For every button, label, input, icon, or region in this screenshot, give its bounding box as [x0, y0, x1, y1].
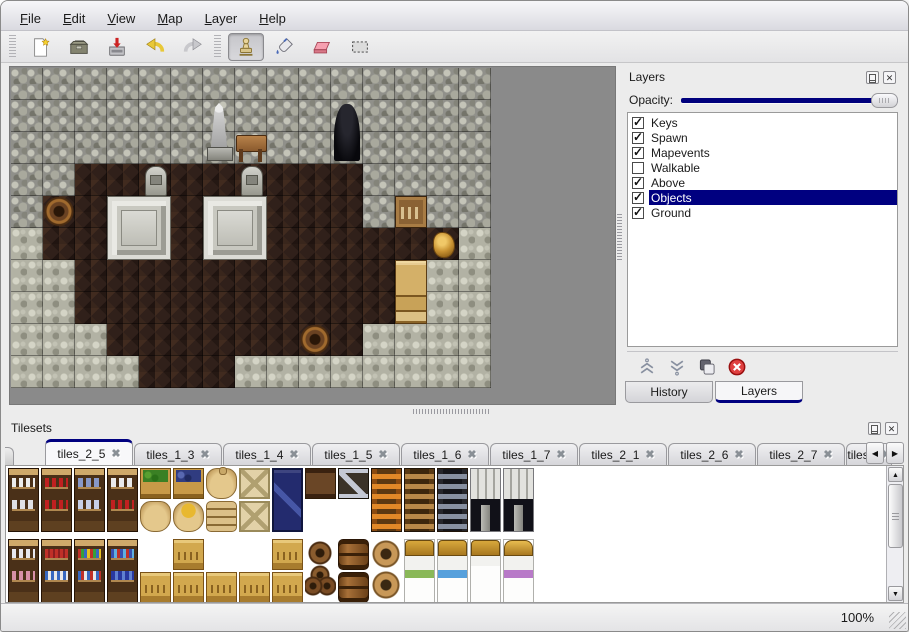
- map-object-table: [235, 132, 267, 164]
- map-tile-stone-wall[interactable]: [299, 68, 331, 100]
- map-tile-stone-ground[interactable]: [43, 260, 75, 292]
- map-tile-stone-ground[interactable]: [11, 356, 43, 388]
- tileset-tile-shelf-bottles-red[interactable]: [41, 468, 72, 532]
- map-tile-wood-floor[interactable]: [139, 260, 171, 292]
- close-tab-icon[interactable]: ✖: [645, 448, 654, 461]
- map-tile-wood-floor[interactable]: [171, 164, 203, 196]
- tileset-tab-tiles_2_7[interactable]: tiles_2_7✖: [757, 443, 845, 465]
- tileset-tile-sack-round[interactable]: [140, 501, 171, 532]
- map-tile-stone-wall[interactable]: [43, 68, 75, 100]
- scrolled-tab-stub: [5, 447, 14, 465]
- menu-help[interactable]: Help: [250, 9, 295, 28]
- map-tile-stone-wall[interactable]: [459, 164, 491, 196]
- tileset-tile-crate-metal-z[interactable]: [338, 468, 369, 499]
- tileset-tile-barrel[interactable]: [338, 572, 369, 603]
- map-tile-wood-floor[interactable]: [75, 292, 107, 324]
- close-tab-icon[interactable]: ✖: [200, 448, 209, 461]
- tileset-tile-crate-tan[interactable]: [206, 572, 237, 603]
- delete-layer-button[interactable]: [727, 357, 747, 377]
- map-tile-stone-ground[interactable]: [235, 356, 267, 388]
- status-bar: 100%: [1, 603, 908, 631]
- close-tab-icon[interactable]: ✖: [289, 448, 298, 461]
- tileset-tile-bed-purple[interactable]: [503, 539, 534, 603]
- tileset-tile-crate-produce[interactable]: [140, 468, 171, 499]
- tileset-tile-crate-tan[interactable]: [239, 572, 270, 603]
- stamp-icon: [235, 36, 257, 58]
- layer-row-ground[interactable]: Ground: [628, 205, 897, 220]
- tileset-tab-tiles_1_5[interactable]: tiles_1_5✖: [312, 443, 400, 465]
- layer-checkbox[interactable]: [632, 132, 644, 144]
- stamp-tool-button[interactable]: [228, 33, 264, 61]
- map-tile-stone-wall[interactable]: [171, 132, 203, 164]
- tileset-tab-label: tiles_2_1: [591, 448, 639, 462]
- layer-label: Objects: [651, 191, 692, 205]
- map-tile-stone-ground[interactable]: [459, 324, 491, 356]
- menu-edit[interactable]: Edit: [54, 9, 94, 28]
- open-folder-icon: [68, 36, 90, 58]
- tileset-tab-tiles_2_5[interactable]: tiles_2_5✖: [45, 439, 133, 465]
- tileset-tile-sack-open[interactable]: [173, 501, 204, 532]
- select-icon: [349, 36, 371, 58]
- map-tile-stone-wall[interactable]: [171, 68, 203, 100]
- menu-layer[interactable]: Layer: [196, 9, 247, 28]
- map-tile-stone-ground[interactable]: [459, 260, 491, 292]
- map-tile-wood-floor[interactable]: [363, 228, 395, 260]
- tileset-tile-ladder-brown[interactable]: [404, 468, 435, 532]
- duplicate-layer-button[interactable]: [697, 357, 717, 377]
- map-tile-stone-wall[interactable]: [363, 100, 395, 132]
- map-tile-stone-ground[interactable]: [395, 356, 427, 388]
- layer-row-above[interactable]: Above: [628, 175, 897, 190]
- scroll-down-icon[interactable]: ▼: [888, 586, 903, 601]
- map-tile-stone-ground[interactable]: [459, 228, 491, 260]
- layer-checkbox[interactable]: [632, 117, 644, 129]
- layer-checkbox[interactable]: [632, 207, 644, 219]
- float-panel-icon[interactable]: [868, 422, 881, 435]
- tileset-tile-crate-tan[interactable]: [140, 572, 171, 603]
- tileset-tile-crate-tan[interactable]: [173, 572, 204, 603]
- tileset-tile-shelf-dishes[interactable]: [8, 468, 39, 532]
- map-tile-stone-ground[interactable]: [427, 292, 459, 324]
- tileset-tile-shelf-books-blue[interactable]: [107, 539, 138, 603]
- layer-label: Ground: [651, 206, 691, 220]
- map-tile-wood-floor[interactable]: [267, 164, 299, 196]
- layers-panel-title: Layers: [629, 70, 862, 84]
- map-tile-stone-wall[interactable]: [427, 164, 459, 196]
- map-canvas[interactable]: [11, 68, 491, 388]
- map-tile-stone-ground[interactable]: [75, 324, 107, 356]
- tileset-tab-bar: tiles_2_5✖tiles_1_3✖tiles_1_4✖tiles_1_5✖…: [5, 439, 904, 465]
- map-tile-stone-wall[interactable]: [107, 100, 139, 132]
- map-tile-stone-wall[interactable]: [43, 164, 75, 196]
- map-tile-wood-floor[interactable]: [171, 260, 203, 292]
- map-tile-wood-floor[interactable]: [75, 260, 107, 292]
- map-tile-wood-floor[interactable]: [139, 292, 171, 324]
- map-tile-stone-ground[interactable]: [363, 356, 395, 388]
- tilesets-panel: Tilesets tiles_2_5✖tiles_1_3✖tiles_1_4✖t…: [5, 417, 904, 603]
- tileset-tile-shelf-jars[interactable]: [8, 539, 39, 603]
- close-tab-icon[interactable]: ✖: [556, 448, 565, 461]
- layer-row-spawn[interactable]: Spawn: [628, 130, 897, 145]
- tileset-tab-tiles_1_3[interactable]: tiles_1_3✖: [134, 443, 222, 465]
- map-tile-wood-floor[interactable]: [395, 228, 427, 260]
- map-tile-stone-ground[interactable]: [331, 356, 363, 388]
- lower-layer-icon: [667, 357, 687, 377]
- map-tile-stone-wall[interactable]: [427, 100, 459, 132]
- map-tile-stone-ground[interactable]: [427, 324, 459, 356]
- map-tile-wood-floor[interactable]: [107, 324, 139, 356]
- map-object-barrel: [43, 196, 75, 228]
- redo-icon: [182, 36, 204, 58]
- opacity-slider[interactable]: [681, 92, 898, 108]
- map-object-barrel: [299, 324, 331, 356]
- map-object-crate-shelf: [395, 196, 427, 228]
- map-tile-stone-wall[interactable]: [459, 196, 491, 228]
- map-view[interactable]: [9, 66, 616, 405]
- map-tile-stone-wall[interactable]: [139, 132, 171, 164]
- map-tile-wood-floor[interactable]: [203, 164, 235, 196]
- vertical-splitter[interactable]: [616, 66, 623, 405]
- map-tile-wood-floor[interactable]: [299, 164, 331, 196]
- map-tile-stone-wall[interactable]: [395, 68, 427, 100]
- fill-icon: [273, 36, 295, 58]
- map-tile-wood-floor[interactable]: [75, 196, 107, 228]
- map-tile-stone-wall[interactable]: [427, 68, 459, 100]
- dock-tab-bar: HistoryLayers: [623, 381, 902, 405]
- menu-bar: FileEditViewMapLayerHelp: [1, 1, 908, 31]
- tileset-tile-shelf-books-red[interactable]: [41, 539, 72, 603]
- layer-row-walkable[interactable]: Walkable: [628, 160, 897, 175]
- map-tile-stone-ground[interactable]: [75, 356, 107, 388]
- map-tile-wood-floor[interactable]: [267, 292, 299, 324]
- scroll-tabs-right-button[interactable]: ▶: [886, 442, 904, 464]
- map-tile-wood-floor[interactable]: [43, 228, 75, 260]
- map-tile-wood-floor[interactable]: [299, 292, 331, 324]
- raise-layer-icon: [637, 357, 657, 377]
- lower-layer-button[interactable]: [667, 357, 687, 377]
- map-tile-wood-floor[interactable]: [235, 324, 267, 356]
- map-tile-wood-floor[interactable]: [299, 196, 331, 228]
- map-tile-wood-floor[interactable]: [107, 260, 139, 292]
- map-object-gold-pot: [427, 228, 459, 260]
- fill-tool-button[interactable]: [266, 33, 302, 61]
- map-tile-stone-wall[interactable]: [11, 164, 43, 196]
- map-tile-stone-wall[interactable]: [363, 132, 395, 164]
- close-tab-icon[interactable]: ✖: [378, 448, 387, 461]
- tileset-tile-shelf-books-multi[interactable]: [74, 539, 105, 603]
- tab-layers[interactable]: Layers: [715, 381, 803, 403]
- map-tile-stone-wall[interactable]: [363, 164, 395, 196]
- map-tile-wood-floor[interactable]: [171, 324, 203, 356]
- map-tile-stone-ground[interactable]: [427, 260, 459, 292]
- map-tile-stone-ground[interactable]: [43, 292, 75, 324]
- map-tile-wood-floor[interactable]: [107, 292, 139, 324]
- eraser-icon: [311, 36, 333, 58]
- tileset-tab-label: tiles_2_7: [769, 448, 817, 462]
- map-tile-stone-ground[interactable]: [11, 228, 43, 260]
- map-tile-wood-floor[interactable]: [331, 292, 363, 324]
- resize-grip-icon[interactable]: [889, 612, 906, 629]
- map-object-gravestone: [139, 164, 171, 196]
- map-tile-wood-floor[interactable]: [171, 228, 203, 260]
- map-tile-stone-wall[interactable]: [363, 196, 395, 228]
- map-tile-stone-ground[interactable]: [459, 356, 491, 388]
- tileset-tile-ladder-dark[interactable]: [437, 468, 468, 532]
- tileset-tile-crate-strapped[interactable]: [305, 468, 336, 499]
- layer-list: KeysSpawnMapeventsWalkableAboveObjectsGr…: [627, 112, 898, 347]
- tileset-tile-crate-tan[interactable]: [173, 539, 204, 570]
- map-tile-stone-wall[interactable]: [11, 100, 43, 132]
- tileset-tab-label: tiles_1_7: [502, 448, 550, 462]
- undo-icon: [144, 36, 166, 58]
- map-tile-stone-ground[interactable]: [459, 292, 491, 324]
- map-tile-wood-floor[interactable]: [171, 356, 203, 388]
- map-tile-wood-floor[interactable]: [203, 292, 235, 324]
- map-object-cave-entrance: [331, 100, 363, 164]
- tileset-tile-crate-tan[interactable]: [272, 539, 303, 570]
- tileset-tab-label: tiles_1_3: [146, 448, 194, 462]
- opacity-slider-handle[interactable]: [871, 93, 898, 108]
- menu-view[interactable]: View: [98, 9, 144, 28]
- tileset-tile-bed-blue[interactable]: [437, 539, 468, 603]
- map-tile-stone-wall[interactable]: [139, 68, 171, 100]
- map-tile-wood-floor[interactable]: [235, 260, 267, 292]
- map-tile-stone-wall[interactable]: [11, 68, 43, 100]
- tileset-tab-tiles_1_6[interactable]: tiles_1_6✖: [401, 443, 489, 465]
- tileset-tab-label: tiles_2_5: [57, 447, 105, 461]
- tileset-tile-crate-pale[interactable]: [239, 468, 270, 499]
- map-tile-wood-floor[interactable]: [299, 228, 331, 260]
- tileset-tile-bed-green[interactable]: [404, 539, 435, 603]
- tileset-tile-shelf-jugs[interactable]: [107, 468, 138, 532]
- map-tile-stone-wall[interactable]: [331, 68, 363, 100]
- map-tile-wood-floor[interactable]: [75, 228, 107, 260]
- opacity-label: Opacity:: [629, 93, 673, 107]
- map-tile-wood-floor[interactable]: [75, 164, 107, 196]
- map-tile-wood-floor[interactable]: [171, 292, 203, 324]
- map-tile-wood-floor[interactable]: [299, 260, 331, 292]
- menu-map[interactable]: Map: [148, 9, 191, 28]
- map-tile-wood-floor[interactable]: [331, 196, 363, 228]
- tileset-tile-pot-stack[interactable]: [371, 539, 402, 603]
- tileset-tile-crate-pale[interactable]: [239, 501, 270, 532]
- tileset-tab-label: tiles_1_4: [235, 448, 283, 462]
- tileset-tab-label: tiles_1_5: [324, 448, 372, 462]
- map-tile-stone-wall[interactable]: [299, 132, 331, 164]
- raise-layer-button[interactable]: [637, 357, 657, 377]
- layer-row-objects[interactable]: Objects: [628, 190, 897, 205]
- toolbar-handle[interactable]: [9, 35, 16, 59]
- tileset-tab-tiles_1_4[interactable]: tiles_1_4✖: [223, 443, 311, 465]
- save-icon: [106, 36, 128, 58]
- toolbar: [1, 31, 908, 63]
- duplicate-layer-icon: [697, 357, 717, 377]
- tab-history[interactable]: History: [625, 381, 713, 403]
- map-tile-stone-wall[interactable]: [11, 196, 43, 228]
- eraser-tool-button[interactable]: [304, 33, 340, 61]
- map-tile-wood-floor[interactable]: [235, 292, 267, 324]
- new-file-icon: [30, 36, 52, 58]
- app-window: FileEditViewMapLayerHelp Layers Opacity:…: [0, 0, 909, 632]
- map-tile-stone-wall[interactable]: [75, 100, 107, 132]
- layer-checkbox[interactable]: [632, 147, 644, 159]
- tileset-tile-stone-arch[interactable]: [503, 468, 534, 532]
- save-map-button[interactable]: [99, 33, 135, 61]
- close-panel-icon[interactable]: [883, 71, 896, 84]
- tileset-tab-tiles_1_7[interactable]: tiles_1_7✖: [490, 443, 578, 465]
- map-object-statue: [203, 100, 235, 164]
- layer-checkbox[interactable]: [632, 162, 644, 174]
- map-tile-wood-floor[interactable]: [267, 324, 299, 356]
- opacity-row: Opacity:: [623, 88, 902, 112]
- map-tile-wood-floor[interactable]: [107, 164, 139, 196]
- map-tile-wood-floor[interactable]: [203, 324, 235, 356]
- map-tile-stone-ground[interactable]: [299, 356, 331, 388]
- layer-toolbar: [627, 351, 898, 381]
- map-tile-stone-ground[interactable]: [107, 356, 139, 388]
- map-tile-stone-wall[interactable]: [235, 100, 267, 132]
- close-tab-icon[interactable]: ✖: [734, 448, 743, 461]
- map-tile-wood-floor[interactable]: [267, 228, 299, 260]
- layer-label: Keys: [651, 116, 678, 130]
- map-tile-stone-ground[interactable]: [11, 260, 43, 292]
- map-tile-stone-ground[interactable]: [363, 324, 395, 356]
- map-tile-stone-wall[interactable]: [395, 100, 427, 132]
- select-tool-button[interactable]: [342, 33, 378, 61]
- central-area: Layers Opacity: KeysSpawnMapeventsWalkab…: [1, 63, 908, 405]
- tileset-tile-sack-stack[interactable]: [206, 501, 237, 532]
- new-map-button[interactable]: [23, 33, 59, 61]
- map-tile-wood-floor[interactable]: [139, 324, 171, 356]
- map-tile-wood-floor[interactable]: [203, 356, 235, 388]
- map-tile-stone-wall[interactable]: [43, 132, 75, 164]
- layer-label: Walkable: [651, 161, 700, 175]
- toolbar-handle[interactable]: [214, 35, 221, 59]
- map-tile-stone-wall[interactable]: [459, 132, 491, 164]
- map-tile-wood-floor[interactable]: [331, 164, 363, 196]
- map-tile-stone-ground[interactable]: [267, 356, 299, 388]
- map-tile-stone-wall[interactable]: [427, 196, 459, 228]
- map-tile-wood-floor[interactable]: [267, 196, 299, 228]
- redo-button[interactable]: [175, 33, 211, 61]
- map-tile-wood-floor[interactable]: [267, 260, 299, 292]
- map-tile-stone-ground[interactable]: [11, 292, 43, 324]
- delete-layer-icon: [727, 357, 747, 377]
- tileset-tile-stone-arch[interactable]: [470, 468, 501, 532]
- menu-file[interactable]: File: [11, 9, 50, 28]
- open-map-button[interactable]: [61, 33, 97, 61]
- map-tile-stone-wall[interactable]: [267, 68, 299, 100]
- map-tile-stone-wall[interactable]: [395, 132, 427, 164]
- tileset-tile-ladder-orange[interactable]: [371, 468, 402, 532]
- map-tile-wood-floor[interactable]: [203, 260, 235, 292]
- tileset-tab-label: tiles_2_6: [680, 448, 728, 462]
- opacity-slider-track: [681, 98, 898, 103]
- map-tile-wood-floor[interactable]: [331, 324, 363, 356]
- close-panel-icon[interactable]: [885, 422, 898, 435]
- map-tile-stone-wall[interactable]: [395, 164, 427, 196]
- layer-label: Spawn: [651, 131, 688, 145]
- undo-button[interactable]: [137, 33, 173, 61]
- map-tile-stone-ground[interactable]: [11, 324, 43, 356]
- tileset-tab-tiles_2_1[interactable]: tiles_2_1✖: [579, 443, 667, 465]
- map-tile-stone-wall[interactable]: [459, 68, 491, 100]
- layer-checkbox[interactable]: [632, 177, 644, 189]
- tab-scroll-buttons: ◀ ▶: [866, 442, 904, 464]
- map-tile-stone-wall[interactable]: [299, 100, 331, 132]
- layers-panel-titlebar: Layers: [623, 66, 902, 88]
- tileset-tile-crate-tan[interactable]: [272, 572, 303, 603]
- map-tile-stone-wall[interactable]: [107, 132, 139, 164]
- map-tile-wood-floor[interactable]: [331, 228, 363, 260]
- map-tile-stone-wall[interactable]: [43, 100, 75, 132]
- tileset-view[interactable]: ▲ ▼: [5, 465, 904, 603]
- map-tile-wood-floor[interactable]: [363, 292, 395, 324]
- scroll-tabs-left-button[interactable]: ◀: [866, 442, 884, 464]
- map-tile-stone-wall[interactable]: [267, 132, 299, 164]
- map-tile-stone-ground[interactable]: [395, 324, 427, 356]
- map-tile-stone-wall[interactable]: [107, 68, 139, 100]
- tileset-tile-crate-navy[interactable]: [272, 468, 303, 532]
- map-tile-wood-floor[interactable]: [331, 260, 363, 292]
- layer-row-mapevents[interactable]: Mapevents: [628, 145, 897, 160]
- layer-checkbox[interactable]: [632, 192, 644, 204]
- map-tile-stone-wall[interactable]: [203, 68, 235, 100]
- close-tab-icon[interactable]: ✖: [823, 448, 832, 461]
- map-tile-stone-ground[interactable]: [43, 356, 75, 388]
- horizontal-splitter[interactable]: [1, 405, 908, 417]
- tileset-tile-shelf-plates-blue[interactable]: [74, 468, 105, 532]
- tilesets-panel-title: Tilesets: [11, 421, 864, 435]
- map-tile-stone-wall[interactable]: [363, 68, 395, 100]
- tileset-tab-label: tiles_1_6: [413, 448, 461, 462]
- tileset-scrollbar[interactable]: ▲ ▼: [886, 466, 903, 602]
- map-object-wardrobe: [395, 260, 427, 324]
- layer-row-keys[interactable]: Keys: [628, 115, 897, 130]
- map-object-gravestone: [235, 164, 267, 196]
- map-tile-stone-wall[interactable]: [139, 100, 171, 132]
- map-tile-stone-wall[interactable]: [11, 132, 43, 164]
- map-tile-stone-ground[interactable]: [427, 356, 459, 388]
- map-tile-stone-wall[interactable]: [171, 100, 203, 132]
- map-tile-wood-floor[interactable]: [171, 196, 203, 228]
- map-tile-wood-floor[interactable]: [139, 356, 171, 388]
- scroll-up-icon[interactable]: ▲: [888, 467, 903, 482]
- close-tab-icon[interactable]: ✖: [111, 447, 120, 460]
- map-tile-stone-wall[interactable]: [75, 68, 107, 100]
- map-tile-stone-wall[interactable]: [459, 100, 491, 132]
- layer-label: Above: [651, 176, 685, 190]
- tilesets-panel-titlebar: Tilesets: [5, 417, 904, 439]
- map-tile-stone-wall[interactable]: [267, 100, 299, 132]
- close-tab-icon[interactable]: ✖: [467, 448, 476, 461]
- map-tile-stone-wall[interactable]: [75, 132, 107, 164]
- layer-label: Mapevents: [651, 146, 710, 160]
- float-panel-icon[interactable]: [866, 71, 879, 84]
- scrollbar-thumb[interactable]: [888, 484, 903, 548]
- tileset-tile-bed-plain[interactable]: [470, 539, 501, 603]
- tileset-tile-barrel-cluster[interactable]: [305, 539, 336, 603]
- tileset-tile-sack-tall[interactable]: [206, 468, 237, 499]
- tileset-tab-tiles_2_6[interactable]: tiles_2_6✖: [668, 443, 756, 465]
- map-tile-wood-floor[interactable]: [363, 260, 395, 292]
- map-tile-stone-wall[interactable]: [235, 68, 267, 100]
- map-tile-stone-wall[interactable]: [427, 132, 459, 164]
- tileset-tile-barrel[interactable]: [338, 539, 369, 570]
- map-tile-stone-ground[interactable]: [43, 324, 75, 356]
- tileset-tile-crate-berries[interactable]: [173, 468, 204, 499]
- layers-panel: Layers Opacity: KeysSpawnMapeventsWalkab…: [623, 66, 902, 405]
